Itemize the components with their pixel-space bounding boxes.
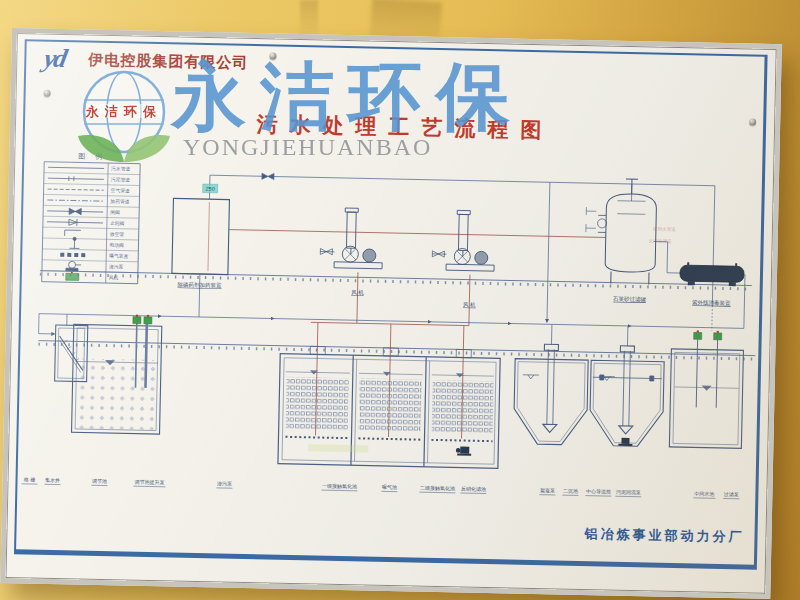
tank-label: 二沉池 — [563, 488, 578, 495]
aeration-contact-tank — [278, 346, 500, 469]
filter-pump-1 — [694, 330, 702, 339]
clarifier-1 — [513, 344, 588, 446]
legend-label: 风机 — [109, 275, 119, 280]
tank-label: 过滤泵 — [724, 491, 739, 498]
tank-label: 二级接触氧化池 — [420, 485, 455, 493]
sand-filter-tank — [596, 178, 657, 284]
tank-labels: 格 栅 集水井 调节池 调节池提升泵 潜污泵 一级接触氧化池 曝气池 二级接触氧… — [21, 476, 739, 499]
blower-1 — [320, 208, 383, 269]
legend-title: 图 例 — [78, 152, 106, 161]
dosing-device — [172, 198, 230, 274]
tank-label: 曝气池 — [382, 484, 397, 491]
pipe-note: 回用水管道 — [653, 225, 677, 232]
filter-pump-2 — [714, 331, 722, 340]
legend-label: 污泥管道 — [111, 176, 131, 183]
pipe-note: 反冲洗管道 — [649, 237, 673, 244]
tank-label: 调节池 — [92, 478, 107, 485]
tank-label: 中心导流筒 — [586, 488, 611, 496]
legend-labels: 污水管道 污泥管道 空气管道 加药管道 闸阀 止回阀 放空管 电动阀 曝气装置 … — [109, 165, 131, 280]
legend-label: 曝气装置 — [109, 253, 128, 258]
tank-label: 潜污泵 — [217, 480, 232, 487]
pipe-notes: 回用水管道 反冲洗管道 — [649, 225, 677, 245]
legend-label: 放空管 — [110, 231, 125, 238]
tank-label: 调节池提升泵 — [134, 479, 164, 487]
pipe-tag-250: 250 — [203, 184, 218, 193]
legend-label: 空气管道 — [111, 187, 131, 194]
tank-label: 格 栅 — [23, 476, 36, 483]
uv-disinfection-unit — [680, 262, 744, 286]
tank-label: 反硝化滤池 — [461, 486, 486, 494]
pipe-tag-text: 250 — [206, 186, 215, 192]
plant-name: 铝冶炼事业部动力分厂 — [584, 525, 744, 546]
uv-unit-label: 紫外线消毒装置 — [692, 299, 731, 307]
equalization-tank — [72, 321, 162, 434]
clarifier2-pipe — [591, 375, 661, 447]
tank-label: 絮凝泵 — [540, 487, 555, 494]
tank-label: 一级接触氧化池 — [322, 483, 357, 491]
clarifier-2 — [589, 345, 664, 447]
process-flow-poster: yd 伊电控股集团有限公司 污水处理工艺流程图 — [0, 28, 781, 599]
tank-label: 集水井 — [45, 477, 60, 483]
tank-label: 污泥回流泵 — [616, 489, 641, 497]
process-flow-diagram: 图 例 — [5, 33, 776, 594]
sludge-pump-icon — [456, 446, 472, 455]
legend-label: 潜污泵 — [109, 264, 124, 270]
legend-box: 图 例 — [42, 152, 141, 284]
legend-label: 加药管道 — [110, 198, 130, 205]
legend-label: 电动阀 — [109, 243, 124, 249]
sand-filter-label: 石英砂过滤罐 — [613, 296, 647, 304]
tank-label: 中间水池 — [694, 490, 714, 497]
legend-label: 闸阀 — [110, 210, 120, 216]
legend-label: 止回阀 — [110, 220, 125, 227]
blower-2 — [432, 210, 495, 271]
legend-label: 污水管道 — [111, 165, 131, 172]
